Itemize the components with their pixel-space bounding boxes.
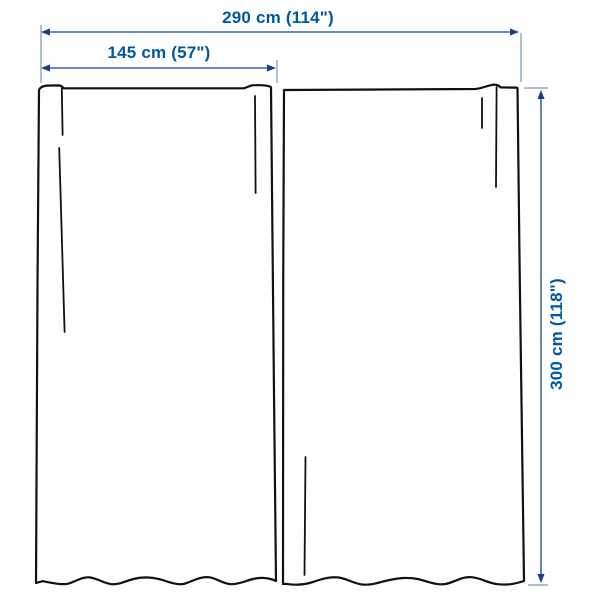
arrow-right-icon (510, 28, 519, 35)
arrow-up-icon (537, 90, 544, 99)
panel-width-label: 145 cm (57") (107, 43, 210, 63)
arrow-right-icon (267, 64, 276, 71)
right-panel-outline (283, 85, 524, 585)
total-width-label: 290 cm (114") (222, 8, 334, 28)
left-panel-fold-long-left (59, 148, 64, 332)
arrow-down-icon (537, 574, 544, 583)
height-label: 300 cm (118") (547, 278, 567, 390)
arrow-left-icon (41, 28, 50, 35)
curtain-dimension-diagram: 290 cm (114") 145 cm (57") 300 cm (118") (0, 0, 600, 600)
right-panel-fold-top-crest (496, 87, 497, 187)
diagram-canvas (0, 0, 600, 600)
left-panel-outline (36, 85, 276, 584)
arrow-left-icon (41, 64, 50, 71)
right-curtain-panel (283, 85, 524, 585)
left-panel-fold-top-right (255, 96, 256, 193)
left-curtain-panel (36, 85, 276, 584)
height-dimension (524, 88, 548, 585)
right-panel-fold-bottom (305, 457, 306, 575)
left-panel-fold-top-left (62, 89, 63, 136)
panel-width-dimension (41, 60, 277, 83)
